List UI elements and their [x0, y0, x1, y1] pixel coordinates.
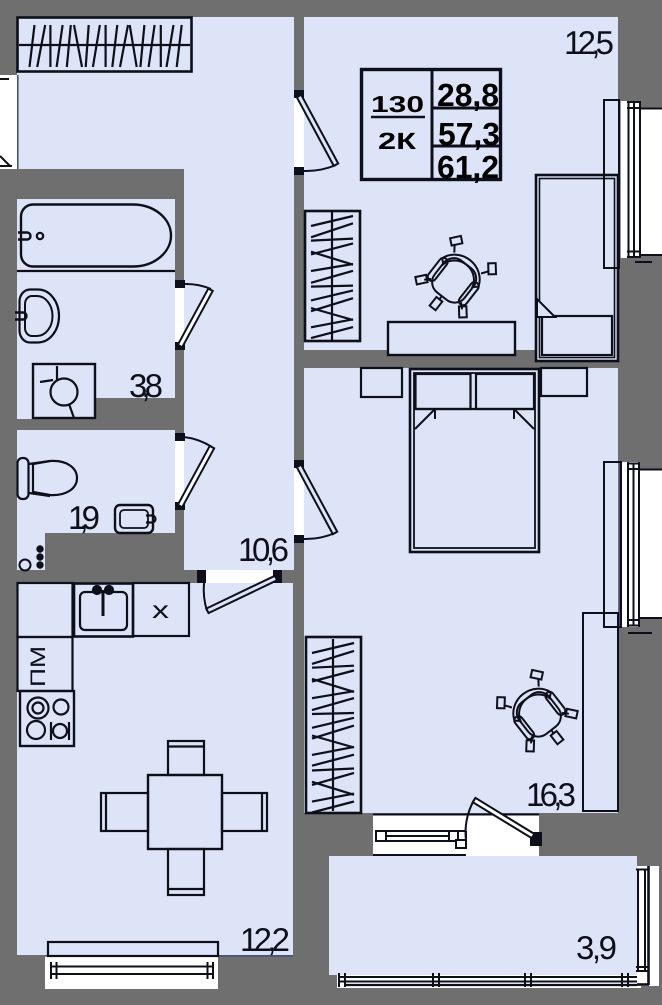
svg-text:2К: 2К — [378, 128, 417, 154]
svg-text:57,3: 57,3 — [438, 116, 500, 152]
svg-text:130: 130 — [371, 91, 424, 117]
svg-text:61,2: 61,2 — [437, 149, 499, 185]
svg-text:1,9: 1,9 — [68, 499, 100, 536]
svg-text:3,9: 3,9 — [576, 929, 617, 966]
svg-text:12,2: 12,2 — [240, 921, 290, 958]
svg-text:12,5: 12,5 — [564, 24, 614, 61]
svg-text:х: х — [152, 597, 169, 624]
svg-text:3,8: 3,8 — [129, 367, 163, 404]
svg-text:16,3: 16,3 — [526, 776, 576, 813]
svg-text:10,6: 10,6 — [238, 531, 289, 568]
svg-text:ПМ: ПМ — [27, 646, 50, 687]
svg-text:28,8: 28,8 — [437, 77, 499, 113]
